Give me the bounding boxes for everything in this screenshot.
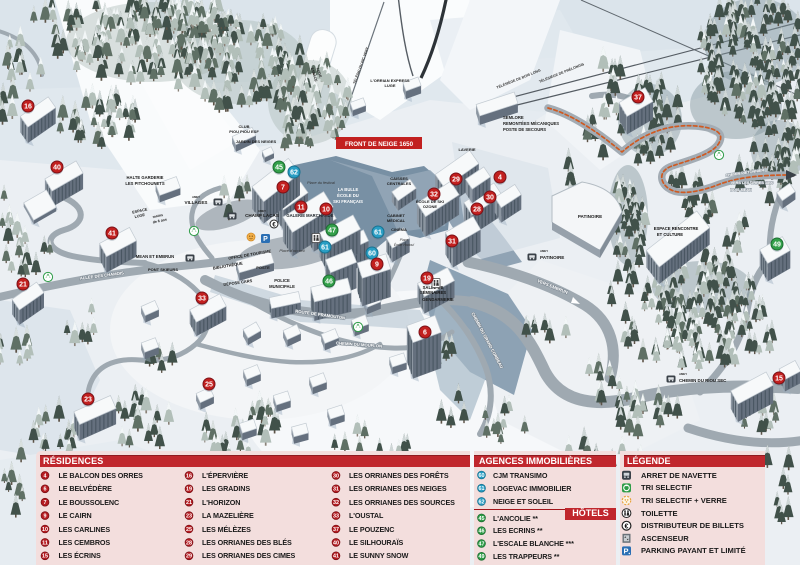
svg-text:REMONTÉES MÉCANIQUES: REMONTÉES MÉCANIQUES [503, 121, 559, 126]
svg-text:23: 23 [84, 396, 92, 403]
svg-text:SEMLORE: SEMLORE [503, 115, 524, 120]
svg-text:62: 62 [290, 169, 298, 176]
svg-text:LUGE: LUGE [384, 83, 395, 88]
svg-text:11: 11 [297, 204, 305, 211]
svg-text:SÉMINAIRES: SÉMINAIRES [420, 290, 446, 295]
svg-text:33: 33 [198, 295, 206, 302]
svg-text:46: 46 [325, 278, 333, 285]
svg-text:MUNICIPALE: MUNICIPALE [269, 284, 295, 289]
svg-text:21: 21 [19, 281, 27, 288]
svg-text:41: 41 [108, 230, 116, 237]
svg-text:45: 45 [275, 164, 283, 171]
svg-text:FRONT DE NEIGE 1650: FRONT DE NEIGE 1650 [345, 141, 414, 148]
svg-text:CENTRALES: CENTRALES [387, 181, 412, 186]
svg-text:30: 30 [486, 194, 494, 201]
svg-text:28: 28 [473, 206, 481, 213]
svg-text:Place d'accueil: Place d'accueil [279, 249, 304, 253]
svg-text:15: 15 [775, 375, 783, 382]
svg-text:10: 10 [322, 206, 330, 213]
svg-text:AMEY: AMEY [679, 372, 687, 376]
svg-text:VILLAGES: VILLAGES [185, 200, 208, 205]
svg-text:PIOU PIOU ESF: PIOU PIOU ESF [229, 129, 259, 134]
svg-text:PONT SKIEURS: PONT SKIEURS [148, 267, 178, 272]
svg-text:MEAN ET EMBRUN: MEAN ET EMBRUN [136, 254, 174, 259]
svg-text:POLICE: POLICE [274, 278, 290, 283]
svg-text:Émile Hodoul: Émile Hodoul [394, 242, 414, 247]
svg-text:ÉCOLE DU: ÉCOLE DU [337, 193, 359, 198]
svg-text:AMEY: AMEY [192, 195, 200, 199]
svg-text:LES PITCHOUNETS: LES PITCHOUNETS [125, 181, 165, 186]
svg-text:POSTE DE SECOURS: POSTE DE SECOURS [503, 127, 546, 132]
svg-text:47: 47 [328, 227, 336, 234]
svg-text:40: 40 [53, 164, 61, 171]
svg-text:CINÉMA: CINÉMA [391, 227, 407, 232]
svg-text:49: 49 [773, 241, 781, 248]
svg-text:VERS LES ORRES 1800: VERS LES ORRES 1800 [731, 181, 774, 185]
svg-text:BOIS MÉAN: BOIS MÉAN [730, 187, 752, 192]
svg-text:Place: Place [400, 238, 409, 242]
svg-text:POSTE: POSTE [256, 265, 270, 270]
svg-text:6: 6 [423, 329, 427, 336]
svg-text:16: 16 [24, 103, 32, 110]
svg-text:P: P [263, 236, 268, 243]
svg-text:32: 32 [430, 191, 438, 198]
svg-text:25: 25 [205, 381, 213, 388]
svg-text:PATINOIRE: PATINOIRE [540, 255, 564, 260]
svg-text:CHEMIN DU RIOU SEC: CHEMIN DU RIOU SEC [679, 378, 727, 383]
svg-text:ESPACE RENCONTRE: ESPACE RENCONTRE [654, 226, 699, 231]
svg-text:OZONE: OZONE [423, 204, 438, 209]
svg-text:AMEY: AMEY [540, 249, 548, 253]
svg-text:JARDIN DES NEIGES: JARDIN DES NEIGES [236, 139, 277, 144]
svg-text:GENDARMERIE: GENDARMERIE [422, 297, 454, 302]
svg-text:37: 37 [634, 94, 642, 101]
svg-text:LA BULLE: LA BULLE [338, 187, 359, 192]
svg-text:Place du festival: Place du festival [307, 181, 335, 185]
svg-text:61: 61 [374, 229, 382, 236]
svg-text:HALTE GARDERIE: HALTE GARDERIE [127, 175, 164, 180]
svg-text:MÉDICAL: MÉDICAL [387, 218, 406, 223]
svg-text:9: 9 [375, 261, 379, 268]
svg-text:PATINOIRE: PATINOIRE [578, 214, 602, 219]
svg-text:4: 4 [498, 174, 502, 181]
svg-text:19: 19 [423, 275, 431, 282]
svg-text:60: 60 [368, 250, 376, 257]
svg-text:ET CULTURE: ET CULTURE [657, 232, 683, 237]
svg-text:7: 7 [281, 184, 285, 191]
svg-text:LAVERIE: LAVERIE [458, 147, 475, 152]
svg-text:61: 61 [321, 244, 329, 251]
svg-text:SKI FRANÇAIS: SKI FRANÇAIS [333, 199, 363, 204]
svg-text:29: 29 [452, 176, 460, 183]
svg-text:CHAMP LACAS: CHAMP LACAS [245, 213, 279, 218]
svg-text:31: 31 [448, 238, 456, 245]
